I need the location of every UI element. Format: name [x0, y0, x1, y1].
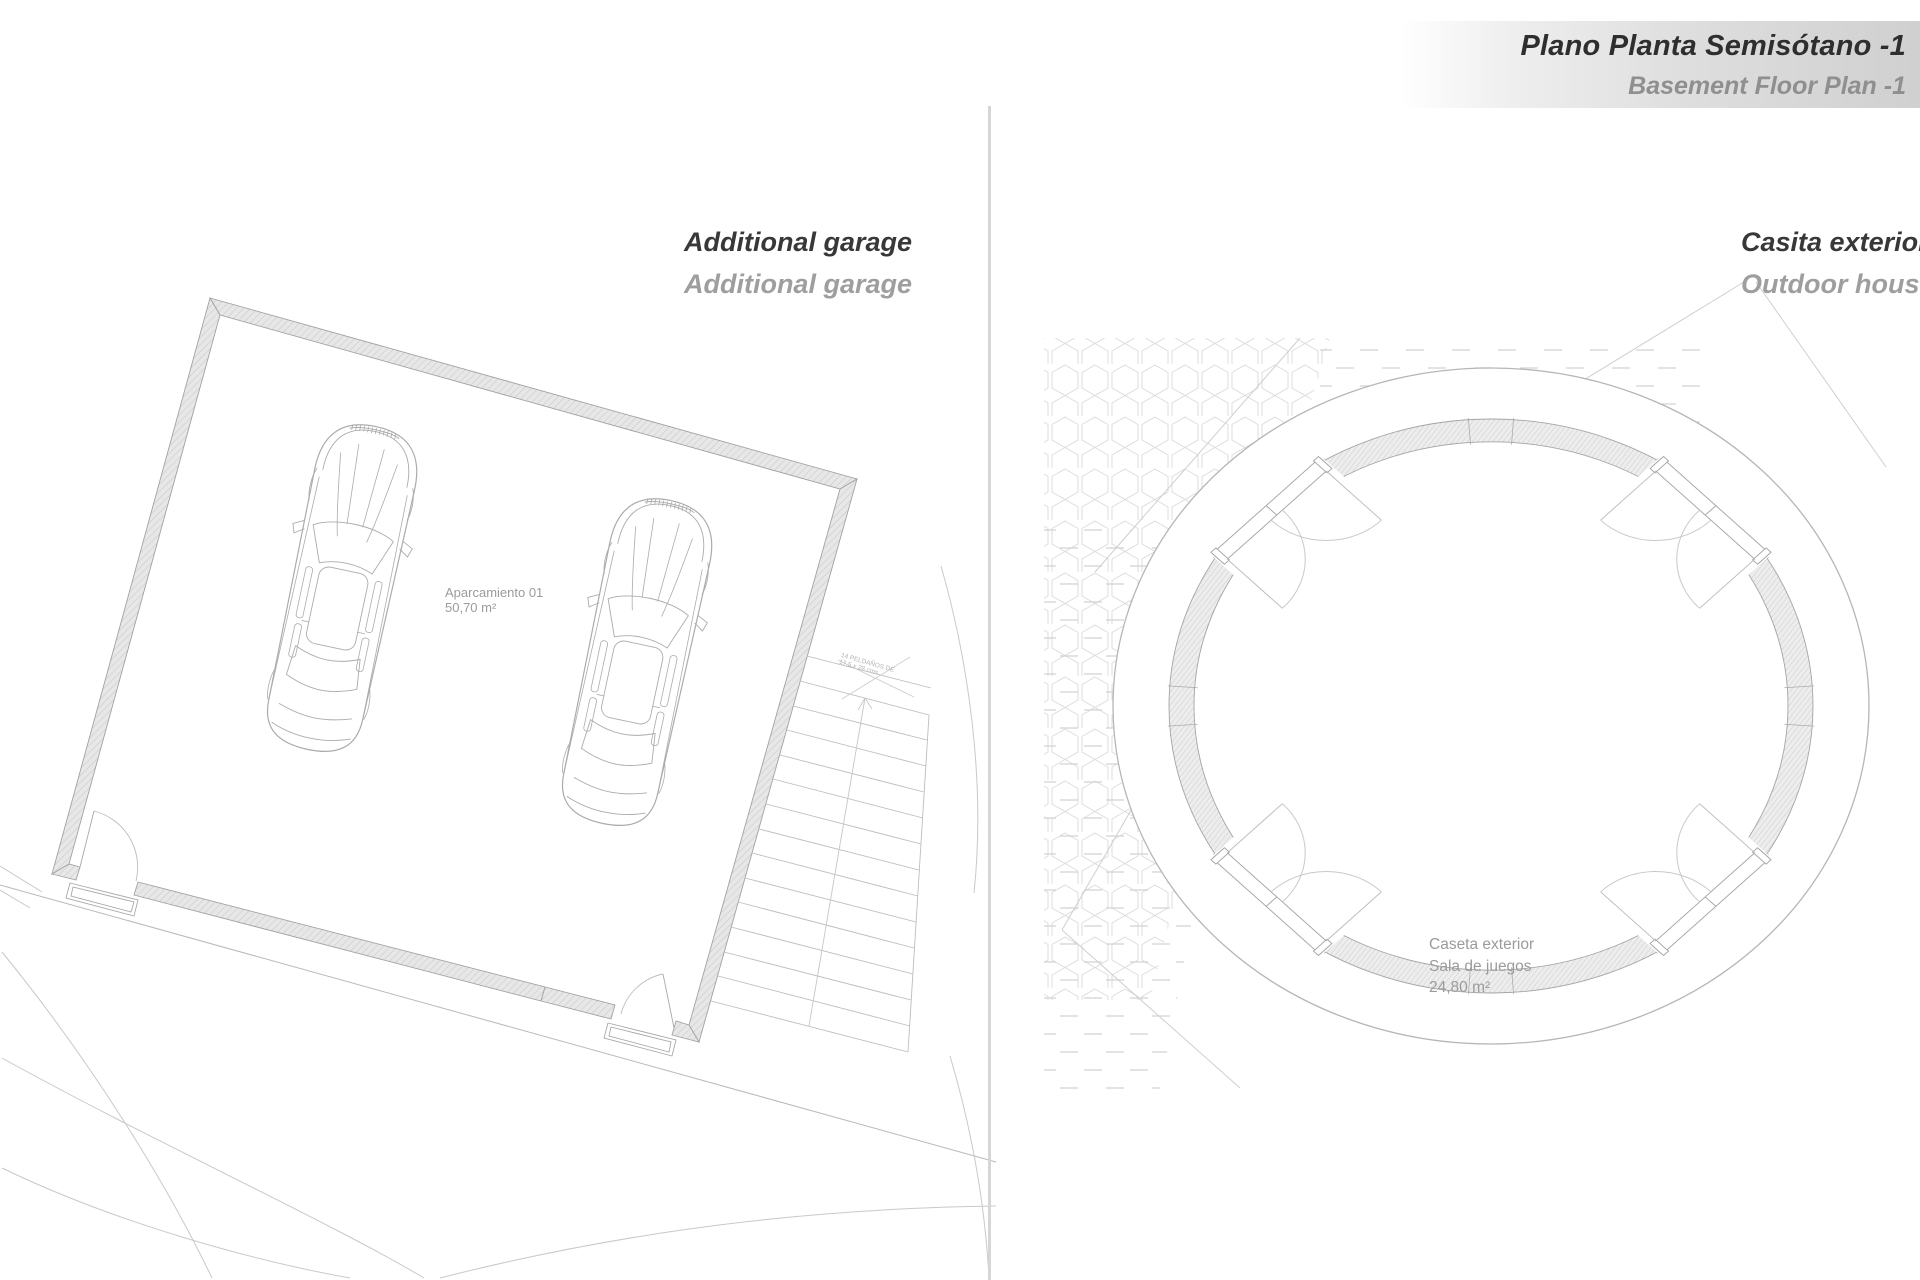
garage-subtitle: Additional garage: [600, 270, 912, 299]
site-lines: [0, 566, 996, 1278]
garage-walls: [52, 298, 857, 1042]
floor-plan-sheet: Plano Planta Semisótano -1 Basement Floo…: [0, 0, 1920, 1280]
garage-title: Additional garage: [600, 228, 912, 257]
panel-divider: [988, 106, 991, 1280]
car-1: [248, 414, 436, 762]
house-title: Casita exterior: [1741, 228, 1920, 257]
house-space-area: 24,80 m²: [1429, 977, 1534, 999]
house-space-name: Caseta exterior: [1429, 934, 1534, 956]
sheet-header: Plano Planta Semisótano -1 Basement Floo…: [1520, 30, 1906, 100]
sheet-title: Plano Planta Semisótano -1: [1520, 30, 1906, 62]
garage-space-label: Aparcamiento 01 50,70 m²: [445, 585, 543, 615]
garage-door-right: [604, 974, 676, 1056]
house-panel-header: Casita exterior Outdoor house: [1741, 228, 1920, 299]
house-space-label: Caseta exterior Sala de juegos 24,80 m²: [1429, 934, 1534, 999]
house-subtitle: Outdoor house: [1741, 270, 1920, 299]
garage-plan: [0, 298, 996, 1278]
garage-space-area: 50,70 m²: [445, 600, 543, 615]
garage-panel-header: Additional garage Additional garage: [600, 228, 912, 299]
car-2: [543, 488, 731, 836]
garage-space-name: Aparcamiento 01: [445, 585, 543, 600]
sheet-subtitle: Basement Floor Plan -1: [1520, 72, 1906, 100]
plan-drawing: [0, 0, 1920, 1280]
house-space-use: Sala de juegos: [1429, 956, 1534, 978]
